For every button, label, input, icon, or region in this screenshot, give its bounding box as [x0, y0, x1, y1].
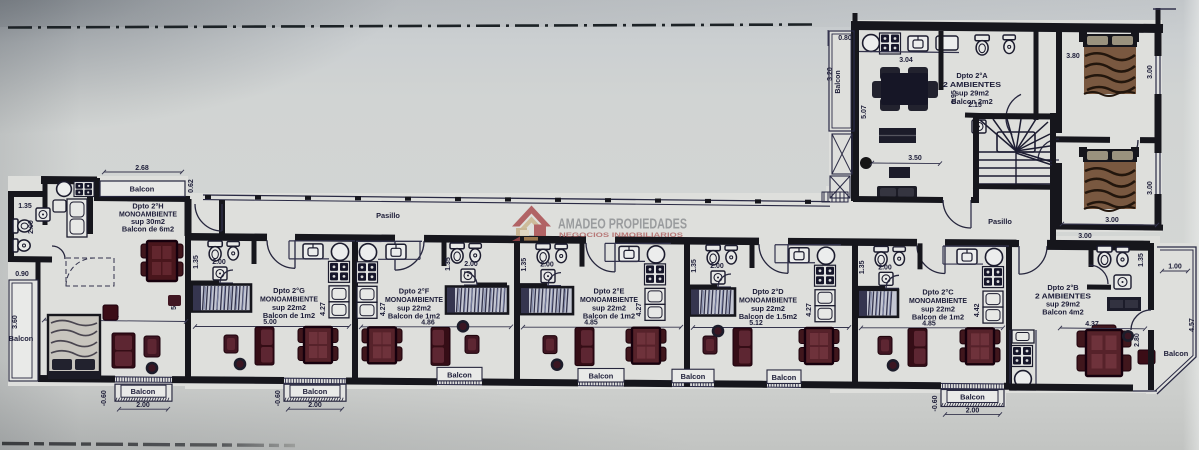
svg-text:4.42: 4.42	[974, 303, 981, 317]
svg-text:3.80: 3.80	[1066, 53, 1080, 60]
svg-text:5.12: 5.12	[749, 320, 763, 327]
svg-text:Balcon de 6m2: Balcon de 6m2	[122, 225, 174, 234]
svg-text:1.35: 1.35	[193, 255, 200, 269]
svg-text:3.00: 3.00	[1078, 233, 1092, 240]
svg-text:Balcon: Balcon	[960, 392, 985, 401]
svg-text:4.85: 4.85	[922, 320, 936, 327]
svg-text:Balcon: Balcon	[589, 372, 614, 381]
svg-text:Balcon de 1.5m2: Balcon de 1.5m2	[739, 312, 797, 321]
svg-text:Balcon 2m2: Balcon 2m2	[951, 97, 993, 106]
svg-text:4.27: 4.27	[380, 302, 387, 316]
svg-text:1.35: 1.35	[521, 258, 528, 272]
svg-text:3.00: 3.00	[1147, 65, 1154, 79]
svg-text:Balcon: Balcon	[130, 185, 155, 194]
svg-text:2.68: 2.68	[135, 165, 149, 172]
svg-text:Balcon: Balcon	[9, 334, 34, 343]
svg-text:Balcon: Balcon	[772, 373, 797, 382]
svg-text:2.00: 2.00	[28, 220, 35, 234]
svg-text:4.27: 4.27	[320, 302, 327, 316]
svg-text:Balcon: Balcon	[1164, 349, 1189, 358]
svg-text:1.35: 1.35	[445, 257, 452, 271]
svg-text:1.35: 1.35	[1138, 253, 1145, 267]
svg-text:Balcon: Balcon	[681, 372, 706, 381]
svg-text:1.35: 1.35	[691, 259, 698, 273]
svg-text:0.62: 0.62	[188, 179, 195, 193]
svg-text:-0.60: -0.60	[932, 395, 939, 411]
svg-text:1.35: 1.35	[859, 260, 866, 274]
svg-text:0.80: 0.80	[838, 35, 852, 42]
svg-text:Pasillo: Pasillo	[988, 217, 1012, 226]
svg-text:2.00: 2.00	[966, 407, 980, 414]
svg-text:-0.60: -0.60	[275, 390, 282, 406]
svg-text:2.00: 2.00	[878, 264, 892, 271]
svg-text:4.27: 4.27	[636, 303, 643, 317]
svg-text:2.00: 2.00	[136, 402, 150, 409]
svg-text:Balcon: Balcon	[835, 70, 842, 93]
svg-text:5.07: 5.07	[861, 105, 868, 119]
svg-text:5.00: 5.00	[263, 319, 277, 326]
svg-text:AMADEO PROPIEDADES: AMADEO PROPIEDADES	[558, 216, 687, 233]
svg-text:4.86: 4.86	[421, 319, 435, 326]
svg-text:Balcon 4m2: Balcon 4m2	[1042, 308, 1084, 317]
svg-text:3.04: 3.04	[899, 57, 913, 64]
svg-text:2.80: 2.80	[1134, 333, 1141, 347]
svg-text:Dpto 2°A: Dpto 2°A	[956, 71, 988, 80]
svg-text:Balcon: Balcon	[131, 387, 156, 396]
svg-text:2.00: 2.00	[540, 262, 554, 269]
svg-text:NEGOCIOS INMOBILIARIOS: NEGOCIOS INMOBILIARIOS	[559, 232, 683, 239]
svg-text:2.00: 2.00	[212, 259, 226, 266]
svg-text:4.27: 4.27	[806, 303, 813, 317]
svg-text:2.00: 2.00	[710, 263, 724, 270]
svg-text:4.37: 4.37	[1085, 321, 1099, 328]
svg-text:-0.60: -0.60	[101, 390, 108, 406]
svg-text:Balcon: Balcon	[303, 387, 328, 396]
svg-text:3.00: 3.00	[1105, 217, 1119, 224]
svg-text:Pasillo: Pasillo	[376, 211, 400, 220]
svg-text:4.57: 4.57	[1189, 318, 1196, 332]
svg-text:3.00: 3.00	[1147, 181, 1154, 195]
svg-text:4.85: 4.85	[584, 320, 598, 327]
svg-text:3.20: 3.20	[827, 67, 834, 81]
svg-text:3.50: 3.50	[908, 155, 922, 162]
svg-text:3.60: 3.60	[12, 315, 19, 329]
svg-text:0.90: 0.90	[15, 271, 29, 278]
svg-text:Balcon de 1m2: Balcon de 1m2	[912, 312, 964, 321]
svg-text:1.00: 1.00	[1168, 264, 1182, 271]
svg-text:1.35: 1.35	[18, 203, 32, 210]
svg-text:2.00: 2.00	[308, 402, 322, 409]
svg-text:Balcon: Balcon	[447, 370, 472, 379]
svg-text:2.00: 2.00	[464, 261, 478, 268]
